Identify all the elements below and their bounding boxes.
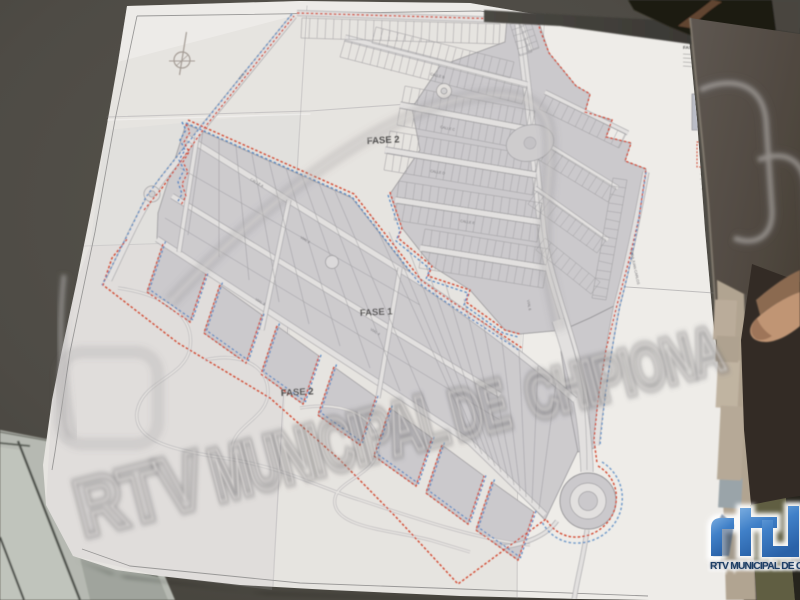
svg-text:RTV MUNICIPAL DE CHIPIONA: RTV MUNICIPAL DE CHIPIONA	[710, 561, 800, 572]
